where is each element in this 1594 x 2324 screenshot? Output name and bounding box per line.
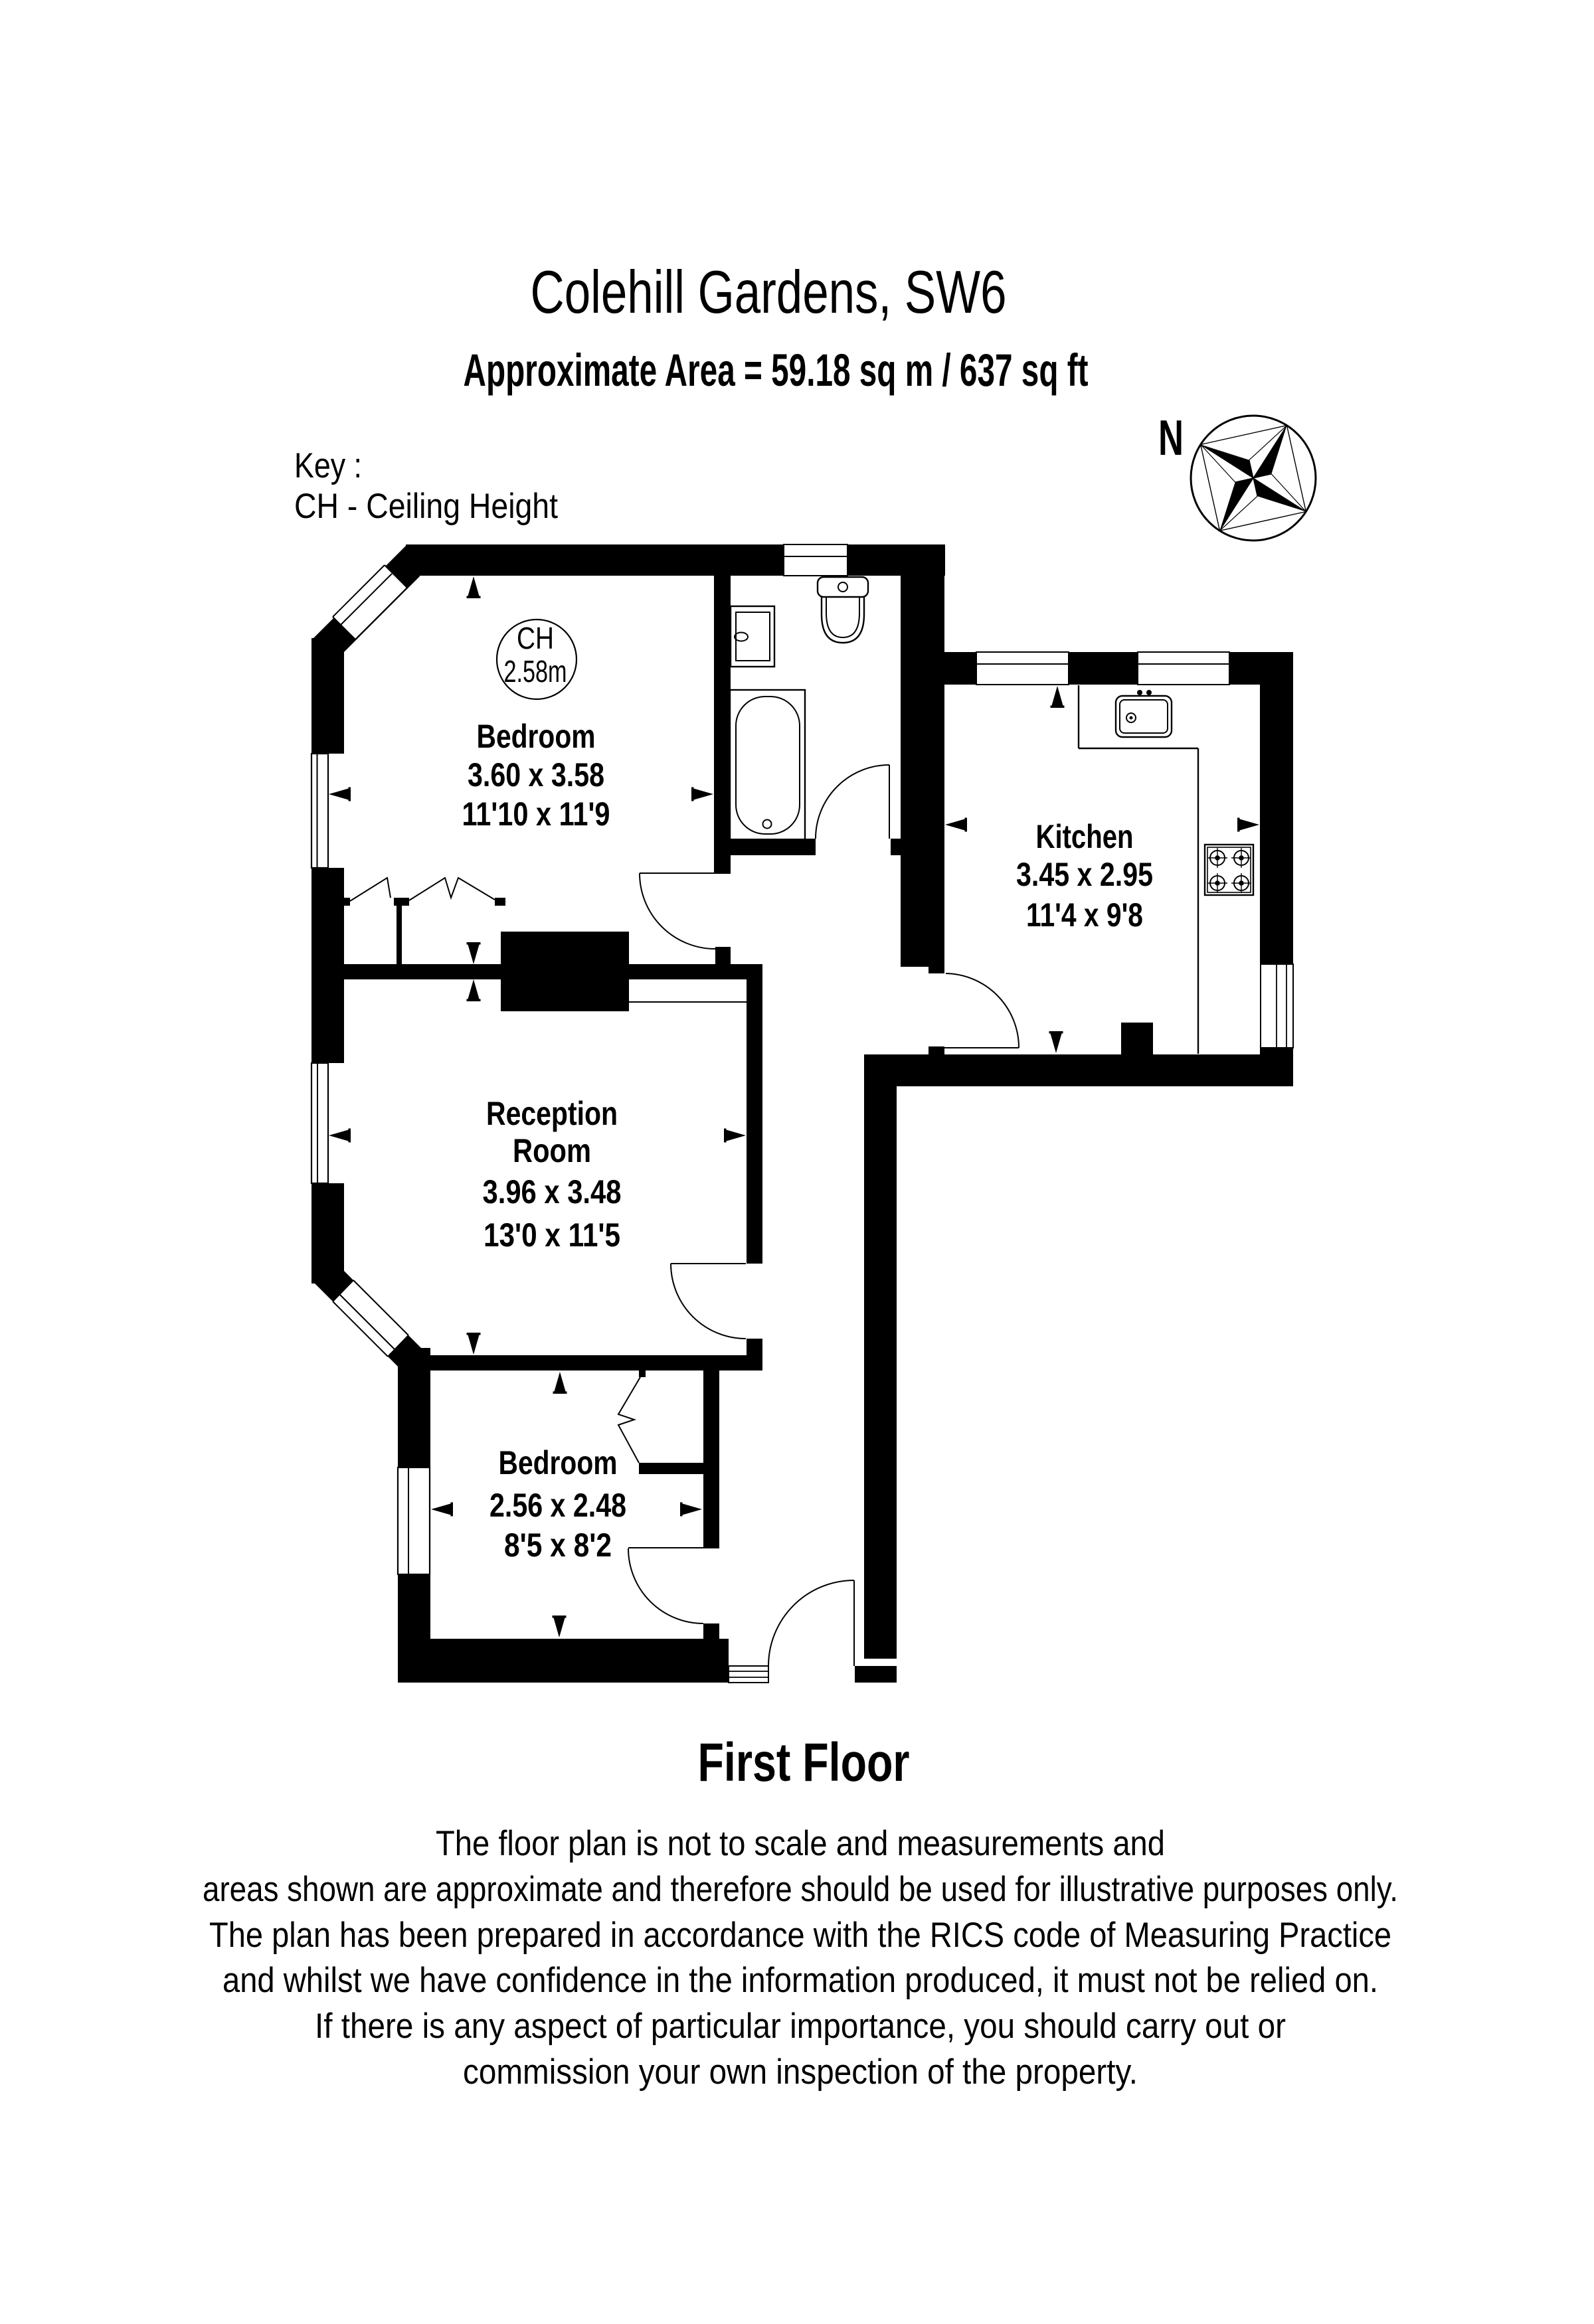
svg-text:13'0 x 11'5: 13'0 x 11'5 xyxy=(484,1216,620,1254)
svg-text:The floor plan is not to scale: The floor plan is not to scale and measu… xyxy=(436,1824,1165,1863)
svg-text:11'4 x 9'8: 11'4 x 9'8 xyxy=(1026,896,1143,934)
svg-text:and whilst we have confidence: and whilst we have confidence in the inf… xyxy=(222,1961,1378,2000)
svg-text:2.58m: 2.58m xyxy=(504,654,567,689)
svg-text:Approximate Area = 59.18 sq m: Approximate Area = 59.18 sq m / 637 sq f… xyxy=(464,345,1089,396)
svg-text:Bedroom: Bedroom xyxy=(477,718,596,755)
svg-text:Kitchen: Kitchen xyxy=(1036,818,1134,855)
svg-text:First Floor: First Floor xyxy=(698,1732,910,1793)
svg-text:commission your own inspection: commission your own inspection of the pr… xyxy=(463,2052,1138,2092)
svg-text:2.56 x 2.48: 2.56 x 2.48 xyxy=(489,1487,626,1524)
svg-text:Room: Room xyxy=(513,1132,591,1169)
svg-text:Key :: Key : xyxy=(294,446,362,485)
svg-text:N: N xyxy=(1158,410,1184,465)
svg-text:3.45 x 2.95: 3.45 x 2.95 xyxy=(1016,856,1153,893)
svg-text:3.60 x 3.58: 3.60 x 3.58 xyxy=(468,756,604,793)
svg-text:If there is any aspect of part: If there is any aspect of particular imp… xyxy=(315,2007,1286,2046)
svg-text:3.96 x 3.48: 3.96 x 3.48 xyxy=(483,1173,622,1210)
svg-text:CH - Ceiling Height: CH - Ceiling Height xyxy=(294,487,558,526)
svg-text:CH: CH xyxy=(517,621,554,655)
svg-text:Bedroom: Bedroom xyxy=(499,1444,618,1481)
svg-text:Colehill Gardens, SW6: Colehill Gardens, SW6 xyxy=(531,259,1007,326)
svg-text:8'5 x 8'2: 8'5 x 8'2 xyxy=(504,1527,612,1564)
svg-text:11'10 x 11'9: 11'10 x 11'9 xyxy=(462,795,610,833)
svg-text:Reception: Reception xyxy=(486,1095,618,1132)
svg-text:The plan has been prepared in: The plan has been prepared in accordance… xyxy=(209,1916,1391,1955)
svg-text:areas shown are approximate an: areas shown are approximate and therefor… xyxy=(203,1870,1398,1909)
